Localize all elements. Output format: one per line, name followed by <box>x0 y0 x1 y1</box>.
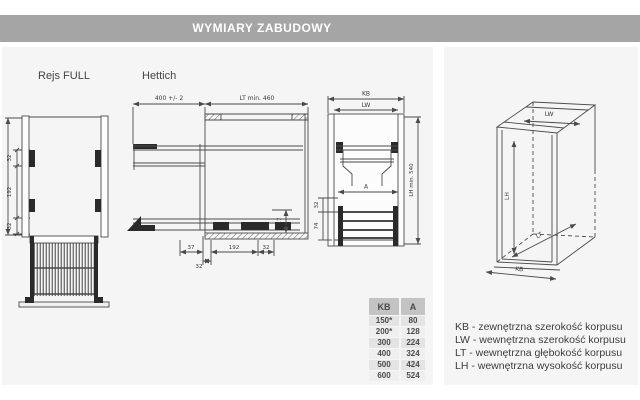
legend-line-kb: KB - zewnętrzna szerokość korpusu <box>455 321 626 334</box>
rejs-front-view: 32 192 32 <box>5 116 109 307</box>
cell-kb: 600 <box>369 371 399 381</box>
table-row: 500 424 <box>369 360 425 370</box>
dim-front-32: 32 <box>314 202 320 209</box>
legend-line-lh: LH - wewnętrzna wysokość korpusu <box>455 360 626 373</box>
dim-kb-label: KB <box>362 91 370 98</box>
dim-chain-32a: 32 <box>196 264 203 270</box>
iso-kb-label: KB <box>515 266 524 274</box>
dim-lw-label: LW <box>362 102 371 109</box>
dim-lh-min-540: LH min. 540 <box>409 163 415 197</box>
dim-chain-32b: 32 <box>263 245 270 251</box>
table-row: 200* 128 <box>369 327 425 337</box>
dim-chain-37: 37 <box>188 245 195 251</box>
table-row: 300 224 <box>369 338 425 348</box>
table-row: 600 524 <box>369 371 425 381</box>
table-row: 150* 80 <box>369 316 425 326</box>
cell-a: 424 <box>401 360 425 370</box>
legend-line-lw: LW - wewnętrzna szerokość korpusu <box>455 334 626 347</box>
iso-lw-label: LW <box>545 111 554 118</box>
dim-depth-lt: LT min. 460 <box>240 95 275 102</box>
dim-extension-400: 400 +/- 2 <box>155 95 183 102</box>
table-header-a: A <box>401 298 425 315</box>
dim-rejs-32-top: 32 <box>7 155 13 162</box>
hettich-side-view: 400 +/- 2 LT min. 460 <box>127 95 308 270</box>
dim-rejs-192: 192 <box>7 187 13 198</box>
hettich-front-view: KB LW LH min. 540 A 32 <box>314 91 421 247</box>
dim-chain-192: 192 <box>229 245 240 251</box>
cell-a: 324 <box>401 349 425 359</box>
cell-kb: 400 <box>369 349 399 359</box>
cell-kb: 300 <box>369 338 399 348</box>
legend-line-lt: LT - wewnętrzna głębokość korpusu <box>455 347 626 360</box>
cell-kb: 150* <box>369 316 399 326</box>
dim-front-74: 74 <box>314 222 320 229</box>
dim-rejs-32-bottom: 32 <box>7 223 13 230</box>
iso-cabinet-view: LH LW LT KB <box>486 102 595 279</box>
cell-a: 128 <box>401 327 425 337</box>
table-row: 400 324 <box>369 349 425 359</box>
cell-kb: 500 <box>369 360 399 370</box>
kb-a-table: KB A 150* 80 200* 128 300 224 400 324 50… <box>367 297 427 382</box>
cell-a: 524 <box>401 371 425 381</box>
cell-a: 80 <box>401 316 425 326</box>
abbreviation-legend: KB - zewnętrzna szerokość korpusu LW - w… <box>455 321 626 373</box>
catalog-page: WYMIARY ZABUDOWY Rejs FULL Hettich 3 <box>0 0 640 400</box>
iso-lh-label: LH <box>504 192 511 200</box>
iso-lt-label: LT <box>535 231 544 240</box>
cell-kb: 200* <box>369 327 399 337</box>
dim-height-17: 17 <box>277 217 283 224</box>
table-header-kb: KB <box>369 298 399 315</box>
cell-a: 224 <box>401 338 425 348</box>
